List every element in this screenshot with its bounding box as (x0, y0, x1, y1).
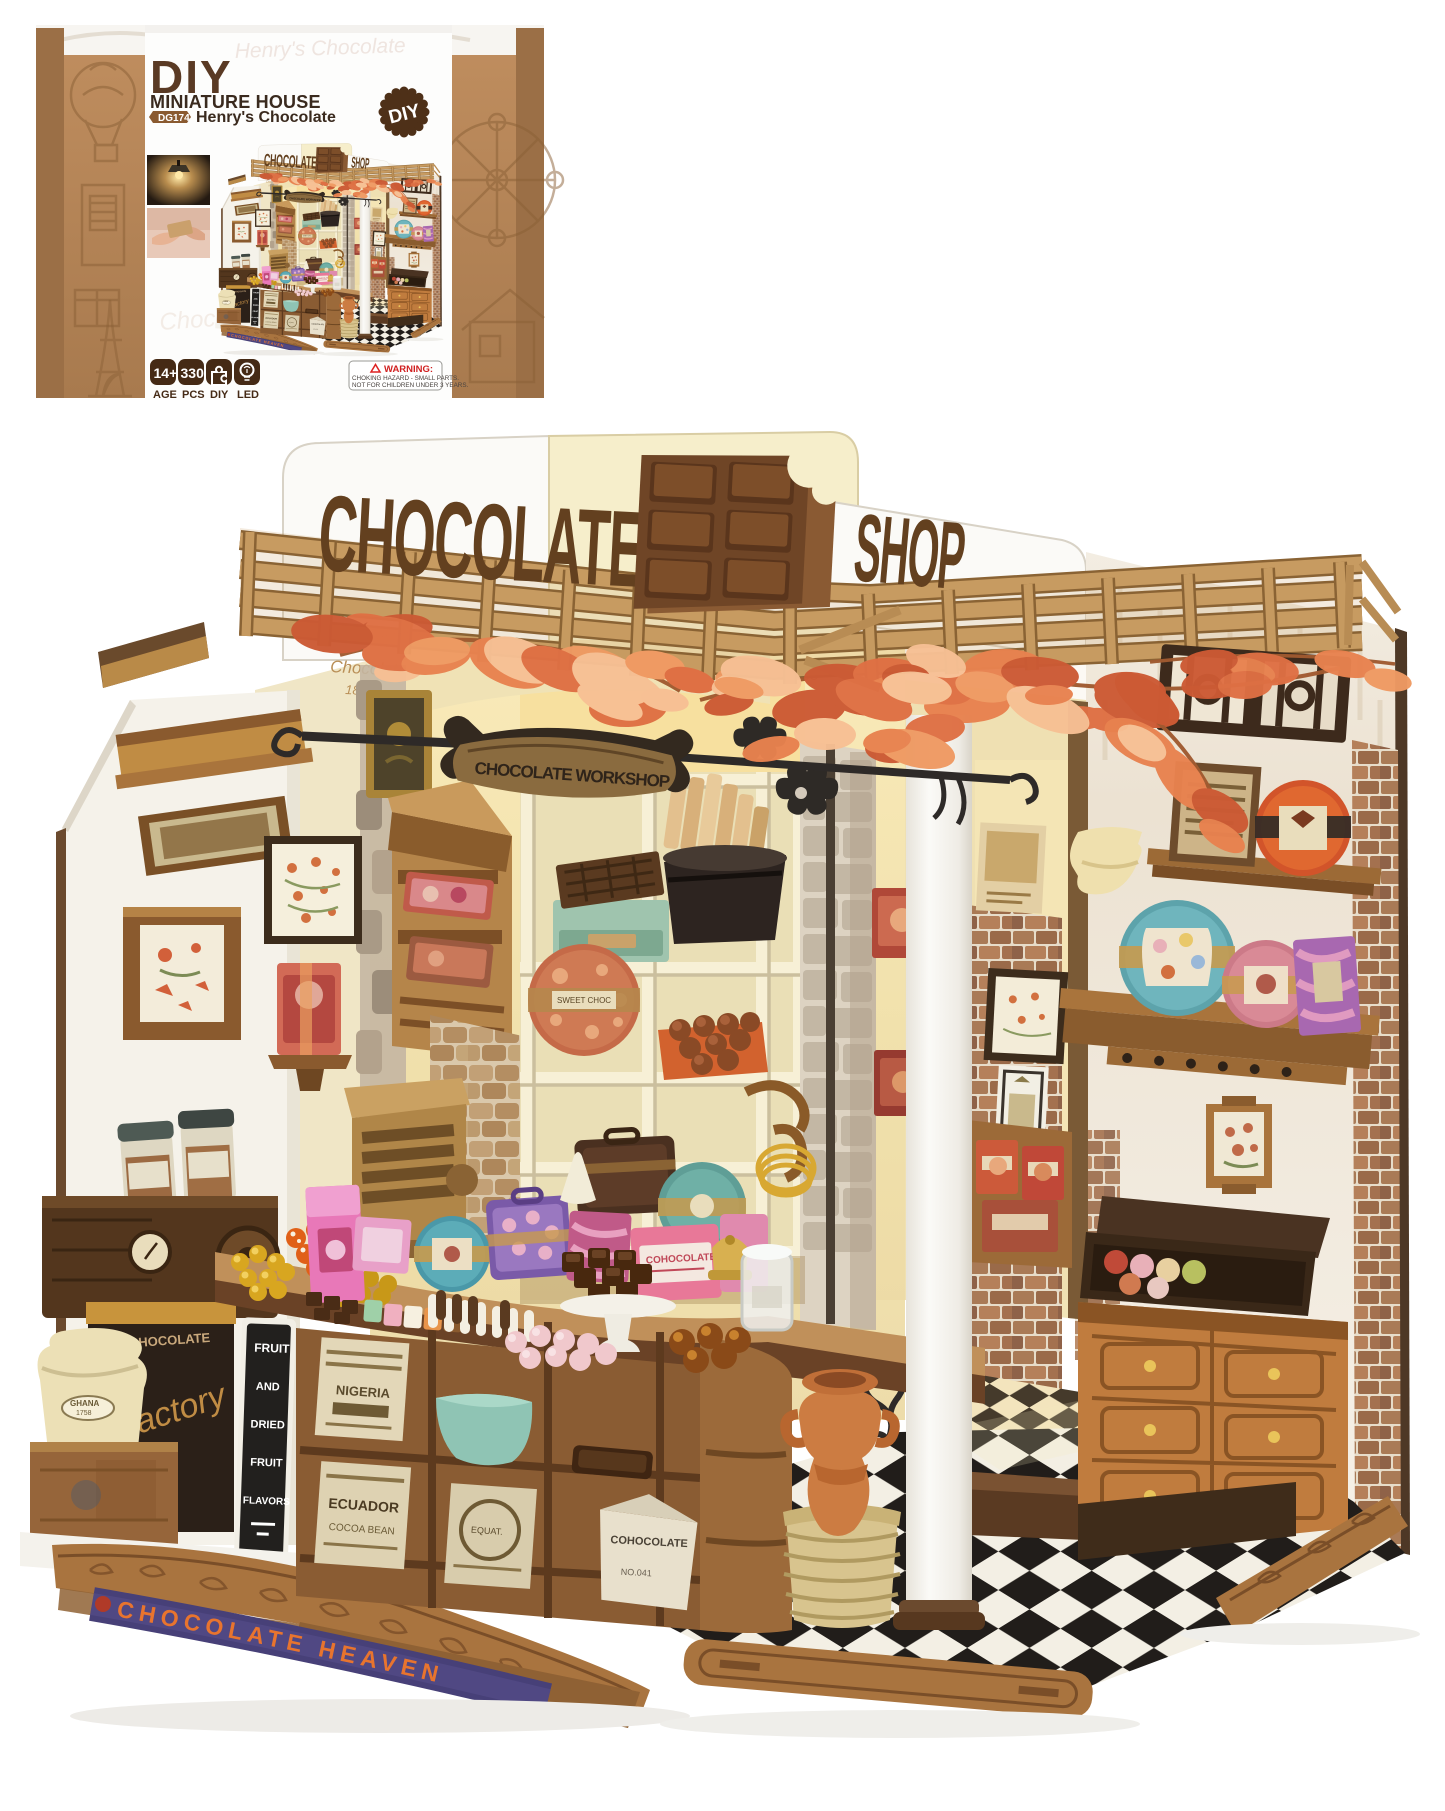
svg-text:AGE: AGE (153, 389, 177, 401)
svg-text:LED: LED (237, 389, 259, 401)
svg-text:Henry's Chocolate: Henry's Chocolate (196, 109, 336, 126)
svg-text:CHOKING HAZARD - SMALL PARTS.: CHOKING HAZARD - SMALL PARTS. (352, 375, 459, 382)
svg-text:14+: 14+ (154, 365, 178, 381)
svg-text:DG174: DG174 (158, 113, 190, 124)
svg-text:WARNING:: WARNING: (384, 364, 433, 375)
svg-text:NOT FOR CHILDREN UNDER 3 YEARS: NOT FOR CHILDREN UNDER 3 YEARS. (352, 382, 469, 389)
svg-text:DIY: DIY (210, 389, 229, 401)
svg-text:330: 330 (181, 365, 205, 381)
svg-text:PCS: PCS (182, 389, 205, 401)
